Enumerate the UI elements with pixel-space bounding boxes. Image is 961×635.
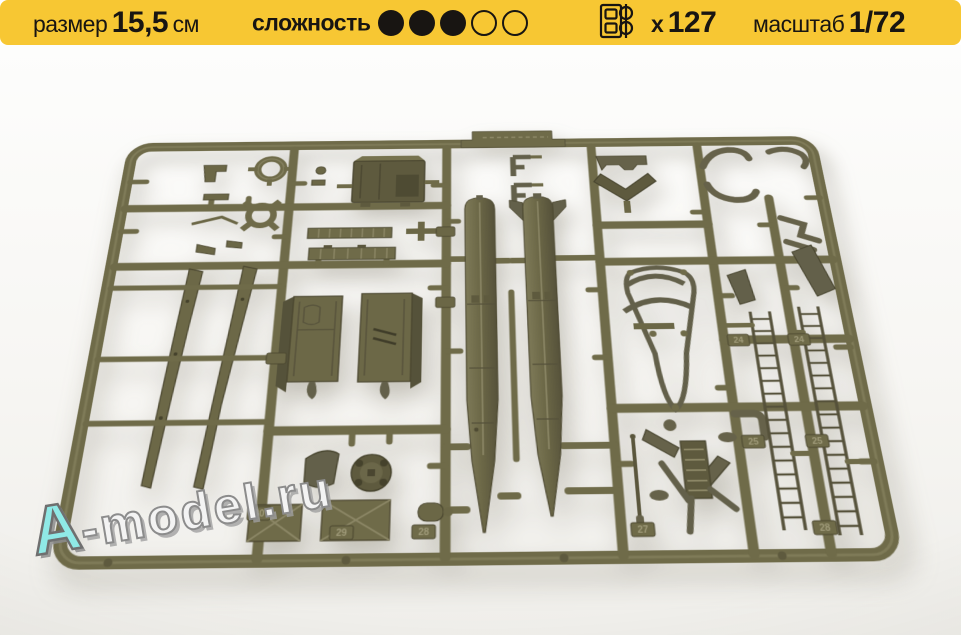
count-prefix: х bbox=[651, 11, 663, 37]
part-number-tag: 27 bbox=[631, 522, 656, 536]
part-number-tag-text: 28 bbox=[819, 522, 832, 533]
part-number-tag: 24 bbox=[727, 334, 750, 346]
part-number-tag: 25 bbox=[805, 434, 830, 447]
small-tbar-part bbox=[406, 222, 437, 241]
product-card: размер 15,5 см сложность bbox=[0, 0, 961, 635]
crate-half-part bbox=[357, 293, 423, 400]
nozzle-part bbox=[350, 454, 391, 491]
size-label: размер bbox=[33, 11, 107, 37]
cab-roof-part bbox=[336, 155, 440, 207]
flange-ring-part bbox=[242, 201, 280, 229]
sprue-top-tab bbox=[461, 131, 565, 148]
difficulty-label: сложность bbox=[252, 11, 371, 34]
part-number-tag-text: 25 bbox=[811, 436, 823, 446]
part-number-tag: 28 bbox=[412, 525, 436, 539]
size-value: 15,5 bbox=[112, 6, 168, 39]
part-number-tag: 29 bbox=[329, 526, 353, 540]
size-unit: см bbox=[173, 11, 199, 37]
difficulty-dots bbox=[378, 10, 528, 36]
scale-group: масштаб 1/72 bbox=[753, 8, 905, 38]
crate-half-part bbox=[274, 296, 342, 400]
frame-loop-part bbox=[620, 267, 709, 411]
part-number-tag-text: 24 bbox=[793, 335, 805, 344]
part-number-tag-text: 29 bbox=[336, 527, 348, 538]
part-number-tag-text: 25 bbox=[748, 437, 760, 447]
info-banner: размер 15,5 см сложность bbox=[0, 0, 961, 45]
sprue-icon bbox=[597, 2, 637, 44]
v-brace-part bbox=[593, 173, 659, 213]
part-number-tag-text: 28 bbox=[418, 527, 429, 538]
seat-bracket-part bbox=[641, 419, 750, 532]
product-photo: 30 29 28 27 bbox=[0, 45, 961, 635]
scale-value: 1/72 bbox=[849, 6, 905, 39]
part-number-tag: 25 bbox=[741, 435, 765, 448]
parts-count-group: х 127 bbox=[651, 8, 716, 38]
difficulty-dot-empty bbox=[471, 10, 497, 36]
watermark-lead-letter: A bbox=[25, 487, 86, 570]
slat-strip-part bbox=[307, 227, 392, 238]
count-value: 127 bbox=[668, 6, 717, 39]
difficulty-dot-filled bbox=[409, 10, 435, 36]
part-number-tag-text: 27 bbox=[637, 524, 649, 535]
notched-strip-part bbox=[596, 156, 648, 170]
size-group: размер 15,5 см bbox=[33, 8, 199, 38]
difficulty-dot-filled bbox=[378, 10, 404, 36]
slat-strip-part bbox=[308, 244, 395, 260]
part-number-tag: 24 bbox=[787, 334, 810, 346]
part-number-tag: 28 bbox=[812, 521, 838, 535]
difficulty-dot-filled bbox=[440, 10, 466, 36]
missile-half-left bbox=[465, 195, 502, 533]
difficulty-dot-empty bbox=[502, 10, 528, 36]
scale-label: масштаб bbox=[753, 11, 844, 37]
antenna-rod-part bbox=[629, 434, 645, 528]
missile-half-right bbox=[509, 193, 585, 517]
fender-arc-part bbox=[701, 150, 758, 201]
part-number-tag-text: 24 bbox=[733, 336, 744, 345]
